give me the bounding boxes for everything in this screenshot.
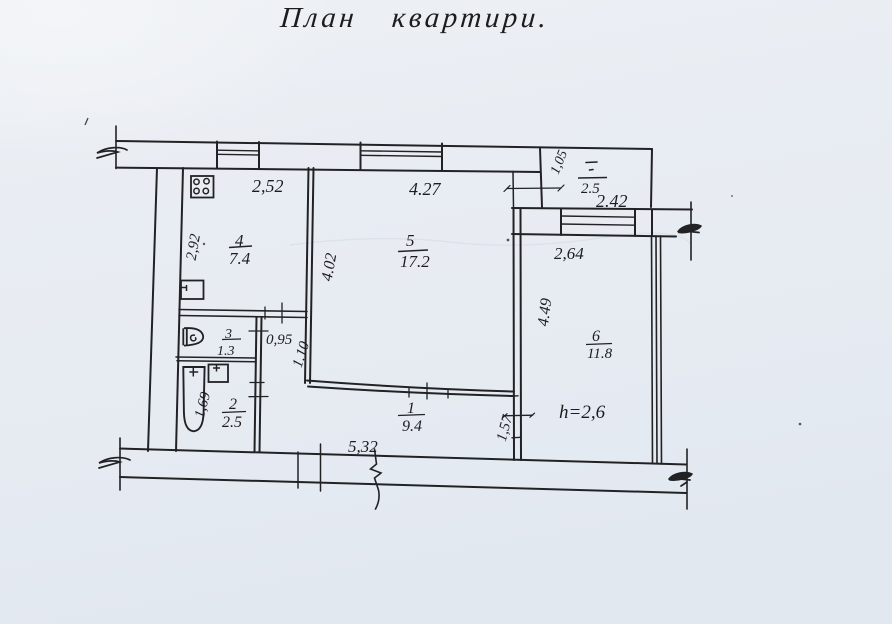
svg-text:5: 5	[406, 231, 415, 250]
svg-text:11.8: 11.8	[587, 346, 613, 362]
svg-text:4.27: 4.27	[409, 179, 442, 199]
svg-text:9.4: 9.4	[402, 418, 422, 435]
svg-text:17.2: 17.2	[400, 252, 430, 271]
svg-text:7.4: 7.4	[229, 249, 251, 268]
svg-text:2.42: 2.42	[596, 191, 628, 211]
svg-text:h=2,6: h=2,6	[559, 402, 606, 423]
svg-text:2,64: 2,64	[554, 244, 584, 263]
svg-text:1.3: 1.3	[217, 344, 235, 359]
svg-text:2: 2	[229, 396, 237, 413]
svg-text:4.49: 4.49	[535, 297, 555, 327]
svg-text:2.5: 2.5	[222, 414, 242, 431]
svg-text:5,32: 5,32	[348, 437, 378, 456]
svg-text:6: 6	[592, 328, 600, 345]
svg-text:2,52: 2,52	[252, 176, 284, 196]
svg-text:0,95: 0,95	[266, 332, 293, 348]
svg-text:План квартири.: План квартири.	[278, 2, 551, 34]
